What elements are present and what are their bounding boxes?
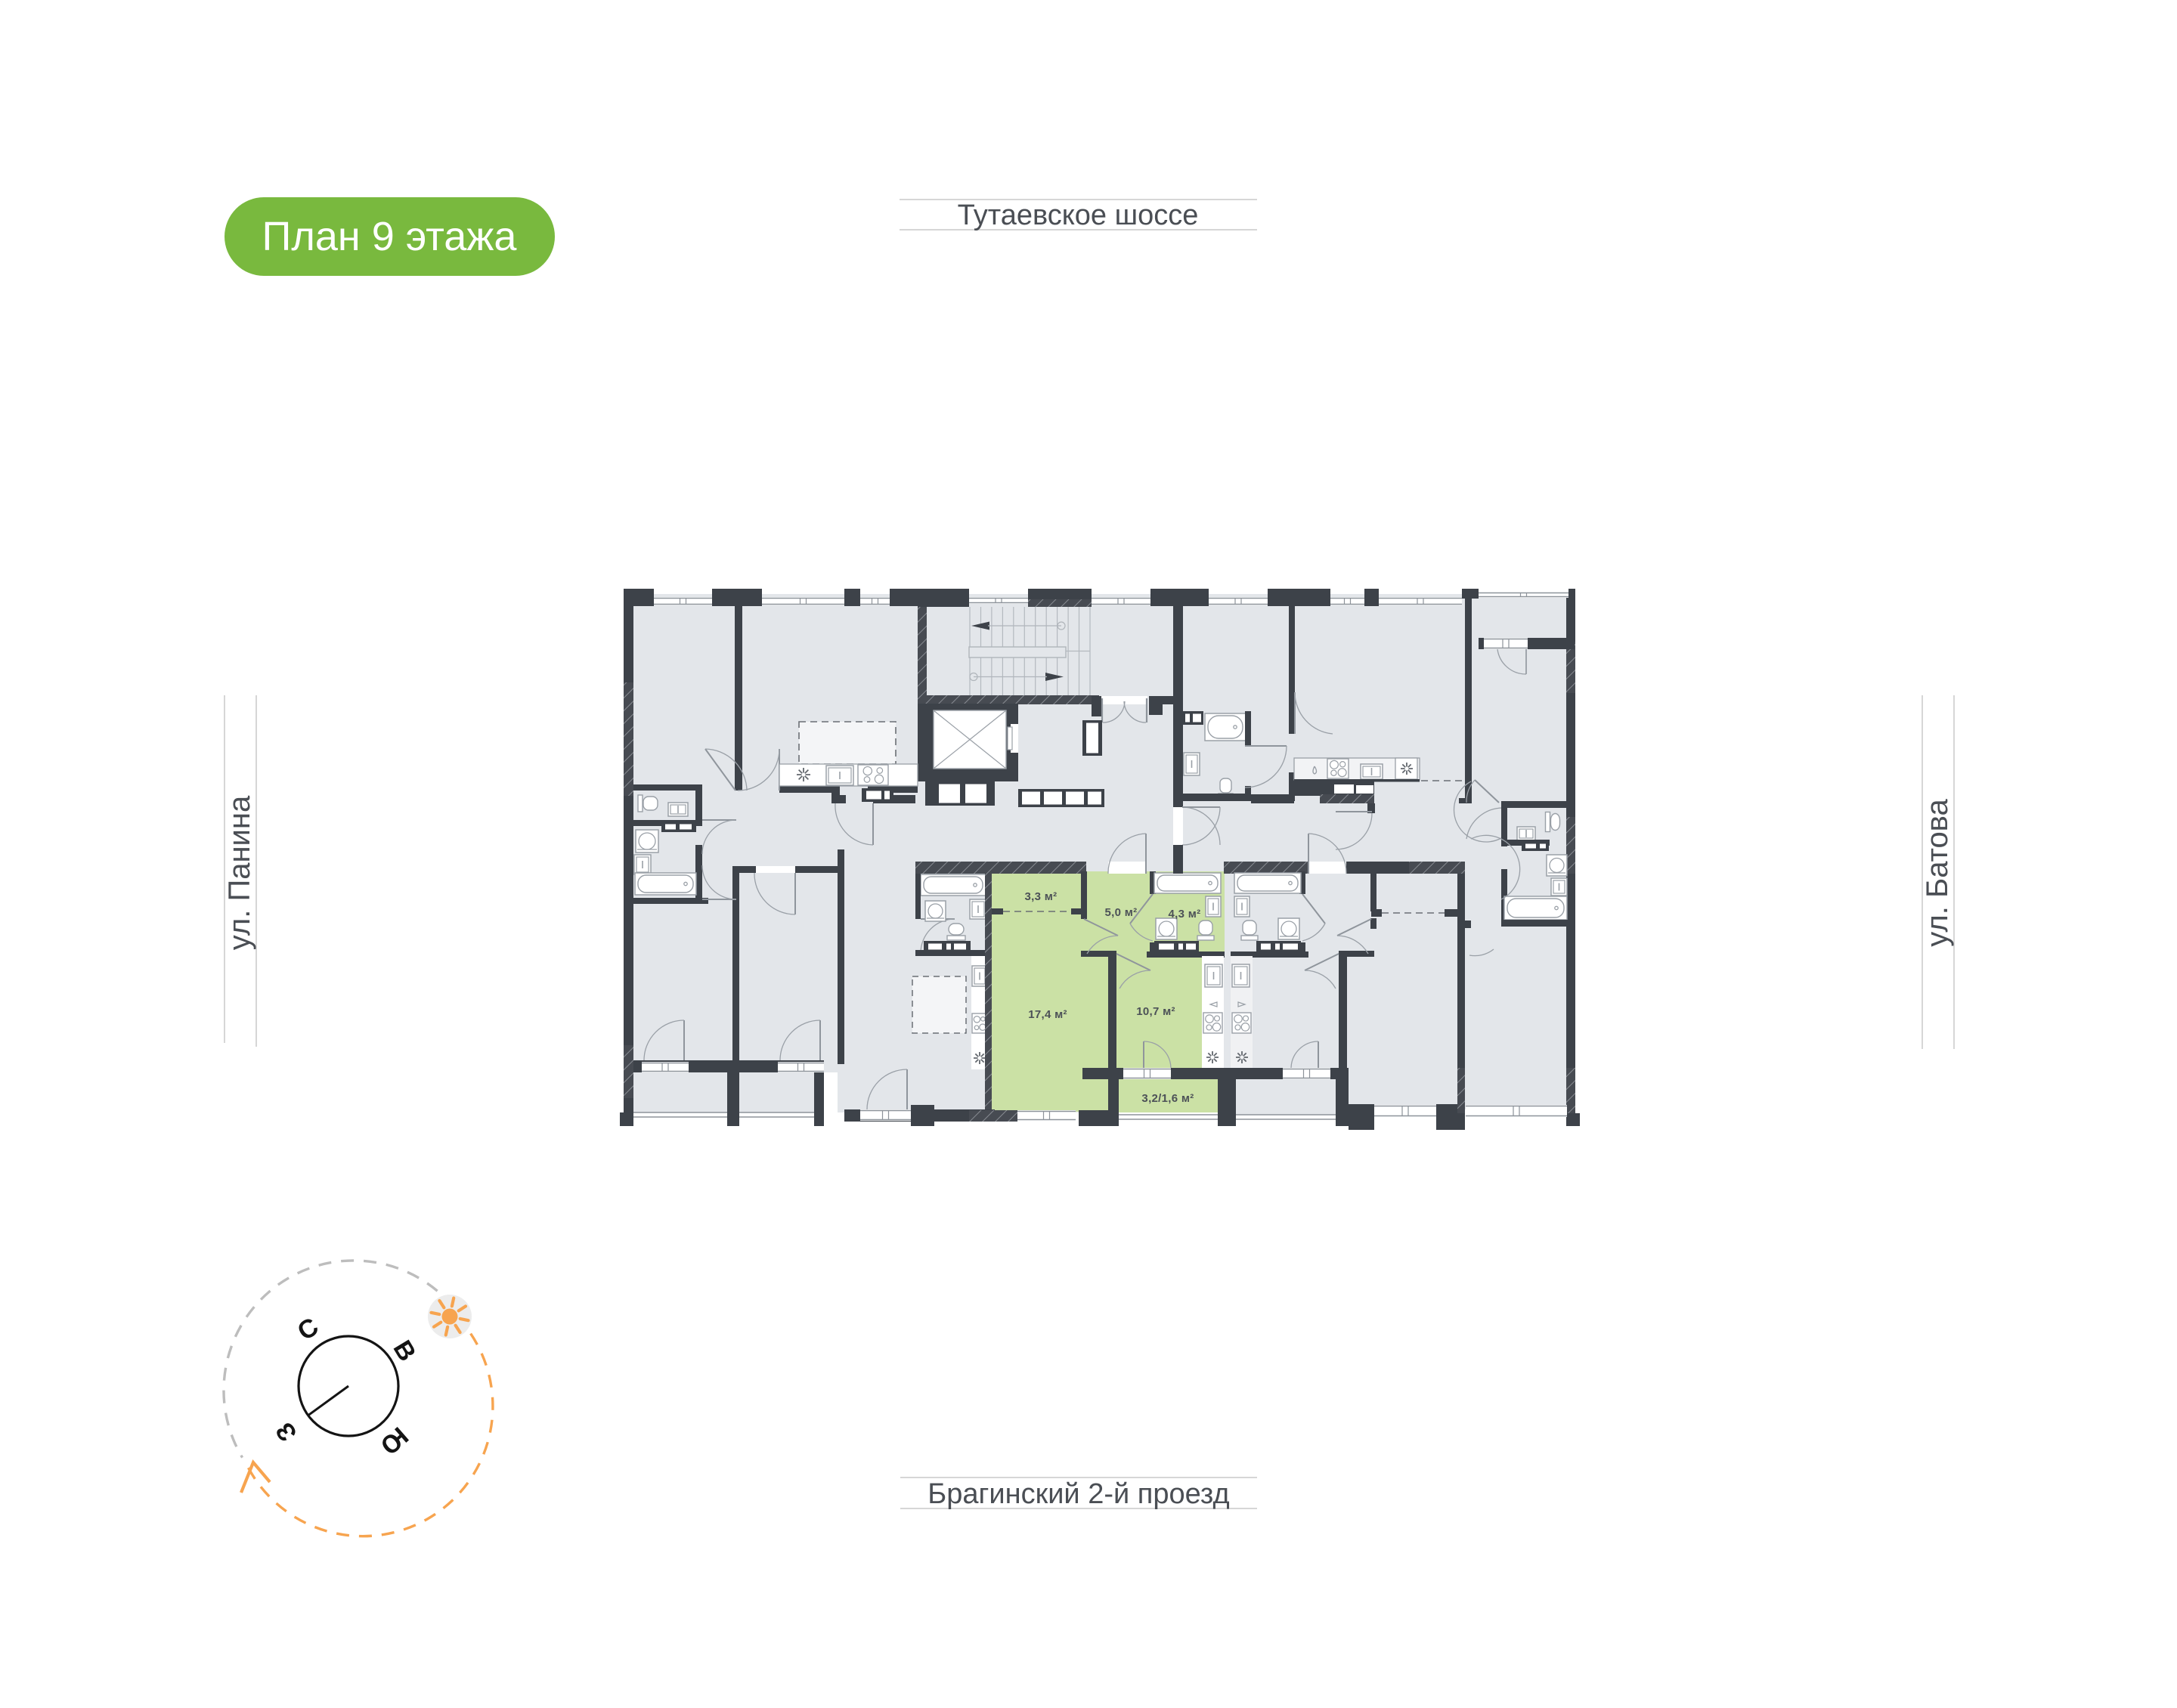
svg-text:4,3 м²: 4,3 м² bbox=[1169, 908, 1201, 921]
svg-text:3,3 м²: 3,3 м² bbox=[1025, 890, 1058, 903]
svg-text:Тутаевское шоссе: Тутаевское шоссе bbox=[958, 200, 1199, 231]
svg-text:З: З bbox=[270, 1417, 302, 1447]
svg-text:План 9 этажа: План 9 этажа bbox=[262, 214, 518, 259]
svg-text:Ю: Ю bbox=[375, 1421, 413, 1460]
svg-text:ул. Батова: ул. Батова bbox=[1921, 799, 1954, 947]
svg-text:ул. Панина: ул. Панина bbox=[223, 795, 256, 950]
svg-text:С: С bbox=[293, 1312, 324, 1346]
svg-text:10,7 м²: 10,7 м² bbox=[1136, 1005, 1175, 1018]
svg-text:Брагинский 2-й проезд: Брагинский 2-й проезд bbox=[927, 1478, 1229, 1510]
svg-text:5,0 м²: 5,0 м² bbox=[1105, 906, 1138, 919]
svg-text:17,4 м²: 17,4 м² bbox=[1028, 1008, 1067, 1021]
svg-text:3,2/1,6 м²: 3,2/1,6 м² bbox=[1141, 1092, 1194, 1105]
